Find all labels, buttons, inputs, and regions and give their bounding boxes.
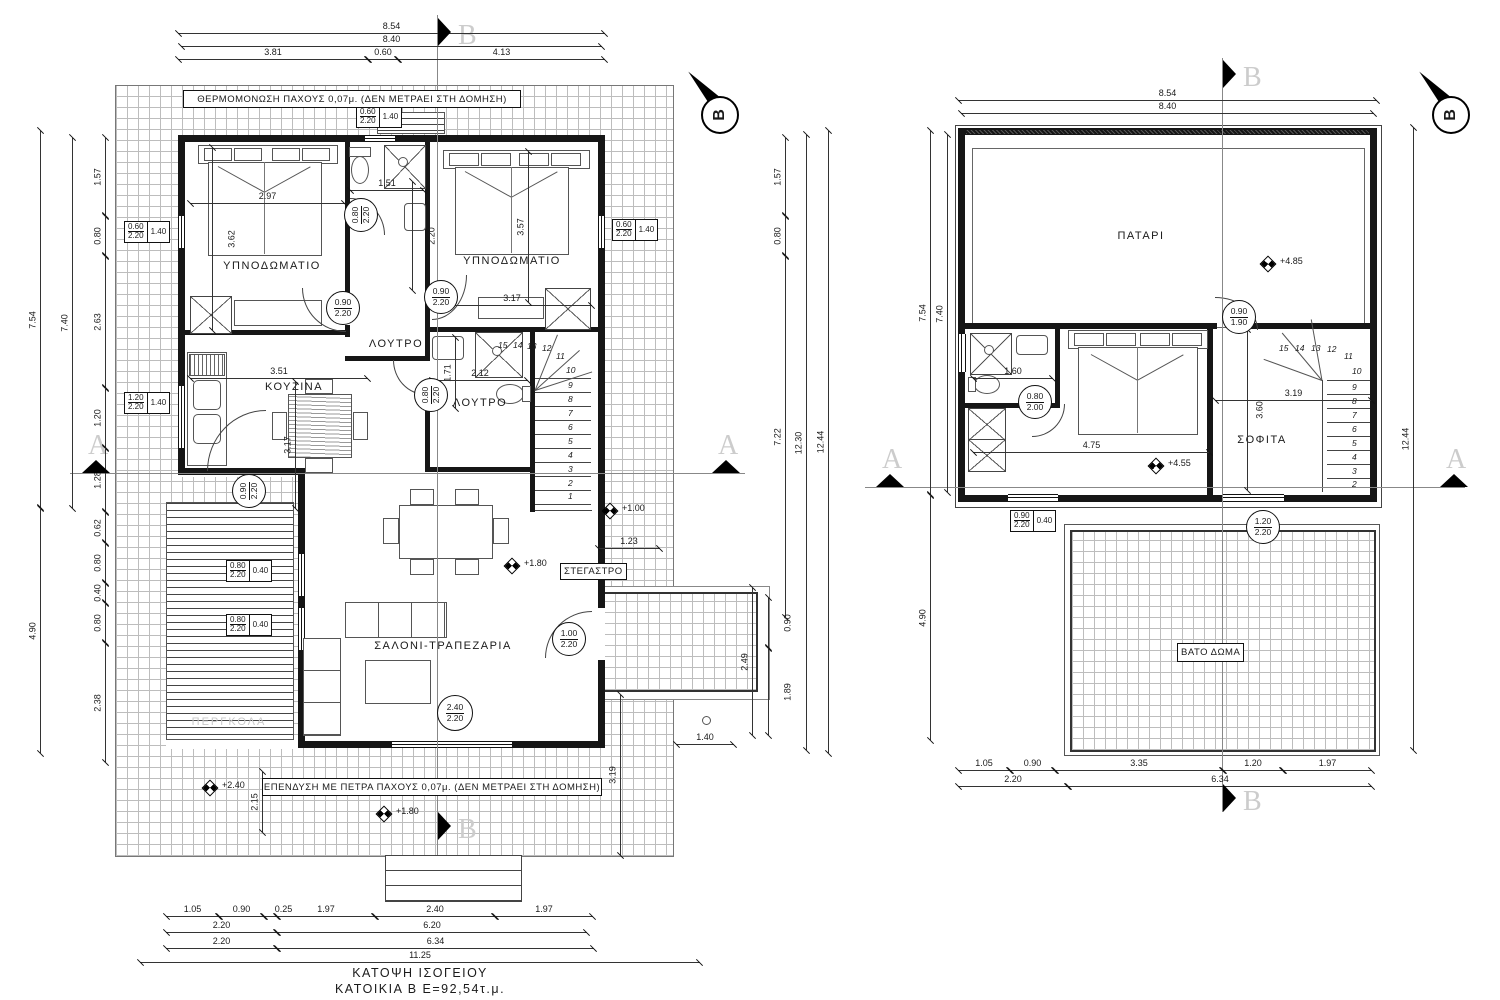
pillow <box>234 148 262 161</box>
dim-line: 0.90 <box>219 916 264 917</box>
room-label-bath2: ΛΟΥΤΡΟ <box>453 397 507 409</box>
stair-number: 11 <box>556 352 565 361</box>
dim-line: 1.60 <box>973 378 1053 379</box>
wall <box>965 323 1217 329</box>
dim-label: 0.80 <box>94 614 103 632</box>
dim-line: 11.25 <box>140 962 700 963</box>
dim-line: 4.75 <box>973 452 1210 453</box>
chair <box>353 412 368 440</box>
section-marker-b <box>1223 60 1236 88</box>
window-height: 2.20 <box>360 117 376 125</box>
dim-label: 3.60 <box>1256 401 1265 419</box>
section-letter-b: B <box>458 816 477 844</box>
dim-label: 2.15 <box>251 793 260 811</box>
window-height: 2.20 <box>128 403 144 411</box>
dim-label: 0.80 <box>94 227 103 245</box>
dim-line: 1.97 <box>277 916 375 917</box>
north-arrow-icon: B <box>701 96 739 134</box>
dim-label: 2.40 <box>426 905 444 914</box>
sink-icon <box>404 203 426 231</box>
dim-label: 1.51 <box>378 179 396 188</box>
room-label-attic: ΣΟΦΙΤΑ <box>1237 434 1286 446</box>
section-letter-a: A <box>882 446 902 474</box>
chair <box>410 489 434 505</box>
dim-line: 4.90 <box>930 495 931 740</box>
dim-label: 8.54 <box>1159 89 1177 98</box>
window-size-marker: 1.202.20 <box>1246 510 1280 544</box>
dim-label: 3.19 <box>609 766 618 784</box>
section-line-a <box>70 473 745 474</box>
dim-label: 2.12 <box>471 369 489 378</box>
stair-number: 5 <box>568 437 573 446</box>
sheet-title-line1: ΚΑΤΟΨΗ ΙΣΟΓΕΙΟΥ <box>352 966 488 980</box>
exterior-steps <box>385 855 522 902</box>
chair <box>305 458 333 473</box>
window-width: 1.20 <box>1254 517 1273 528</box>
section-letter-b: B <box>1243 788 1262 816</box>
dim-label: 2.38 <box>94 694 103 712</box>
dim-label: 0.60 <box>374 48 392 57</box>
dim-label: 4.90 <box>919 609 928 627</box>
window <box>598 216 605 248</box>
dim-line: 0.80 <box>105 603 106 643</box>
north-letter: B <box>711 109 729 121</box>
dim-line: 0.80 <box>105 543 106 583</box>
pillow <box>449 153 479 166</box>
sink-icon <box>1016 335 1048 355</box>
reference-circle <box>702 716 711 725</box>
door-size-marker: 0.902.20 <box>232 474 266 508</box>
dim-line: 3.62 <box>212 148 213 330</box>
wall <box>1243 323 1370 329</box>
dim-label: 6.34 <box>1211 775 1229 784</box>
section-marker-a <box>1440 474 1468 487</box>
insulation-note: ΘΕΡΜΟΜΟΝΩΣΗ ΠΑΧΟΥΣ 0,07μ. (ΔΕΝ ΜΕΤΡΑΕΙ Σ… <box>183 90 521 108</box>
door-height: 2.20 <box>335 309 352 319</box>
dim-line: 2.20 <box>166 932 277 933</box>
door-size-marker: 0.802.20 <box>414 378 448 412</box>
kitchen-sink <box>193 380 221 410</box>
stair-flight <box>1327 380 1370 492</box>
dim-label: 0.90 <box>1024 759 1042 768</box>
window-marker: 0.802.200.40 <box>226 614 272 636</box>
sheet-title-line2: ΚΑΤΟΙΚΙΑ Β Ε=92,54τ.μ. <box>335 982 505 996</box>
level-label: +4.55 <box>1168 458 1191 468</box>
pillow <box>302 148 330 161</box>
dim-line: 3.51 <box>190 378 368 379</box>
roof-terrace-paving <box>1070 530 1376 752</box>
stair-edge <box>535 510 592 511</box>
pillow <box>1172 333 1202 346</box>
dim-line: 1.89 <box>768 648 769 735</box>
door-size-marker: 0.802.20 <box>344 198 378 232</box>
window-sill: 1.40 <box>380 107 402 127</box>
architectural-sheet: ΠΕΡΓΚΟΛΑ <box>0 0 1500 1000</box>
door-size-marker: 0.901.90 <box>1222 300 1256 334</box>
dim-label: 2.20 <box>213 921 231 930</box>
north-letter: B <box>1442 109 1460 121</box>
level-label: +1.80 <box>524 558 547 568</box>
dim-line: 1.57 <box>105 138 106 216</box>
dim-line: 2.40 <box>375 916 495 917</box>
room-label-loft: ΠΑΤΑΡΙ <box>1117 230 1164 242</box>
roof-label: ΒΑΤΟ ΔΩΜΑ <box>1177 643 1244 662</box>
dim-line: 1.05 <box>166 916 219 917</box>
wall <box>1055 329 1060 405</box>
room-label-bedroom1: ΥΠΝΟΔΩΜΑΤΙΟ <box>223 260 321 272</box>
bed <box>1078 347 1198 435</box>
level-label: +4.85 <box>1280 256 1303 266</box>
dim-label: 0.90 <box>233 905 251 914</box>
dim-label: 0.90 <box>784 614 793 632</box>
dim-label: 6.20 <box>423 921 441 930</box>
window-height: 2.20 <box>1255 528 1272 538</box>
window-sill: 0.40 <box>250 615 272 635</box>
stair-number: 10 <box>1352 367 1361 376</box>
stair-number: 2 <box>568 479 573 488</box>
toilet-tank <box>522 386 531 402</box>
bed <box>208 162 322 256</box>
dim-line: 0.80 <box>105 216 106 256</box>
dim-label: 1.23 <box>620 537 638 546</box>
window-width: 2.40 <box>446 703 465 714</box>
stair-number: 12 <box>1327 345 1336 354</box>
dim-label: 7.40 <box>61 314 70 332</box>
dim-line: 0.60 <box>368 59 398 60</box>
window-sill: 0.40 <box>250 561 272 581</box>
chair <box>383 518 399 544</box>
dim-line: 12.30 <box>806 135 807 750</box>
stair-number: 9 <box>568 381 573 390</box>
closet <box>968 439 1006 472</box>
dim-label: 12.44 <box>1402 428 1411 451</box>
insulation-band <box>966 130 1369 134</box>
dim-line: 1.28 <box>105 448 106 512</box>
door-width: 0.80 <box>1026 392 1045 403</box>
section-line-b <box>437 15 438 855</box>
dim-label: 0.80 <box>774 227 783 245</box>
dim-label: 2.63 <box>94 313 103 331</box>
door-height: 2.00 <box>1027 403 1044 413</box>
dim-label: 3.62 <box>228 230 237 248</box>
window-height: 2.20 <box>1014 521 1030 529</box>
room-label-kitchen: ΚΟΥΖΙΝΑ <box>265 381 323 393</box>
stair-edge <box>1322 380 1323 492</box>
window-marker: 0.902.200.40 <box>1010 510 1056 532</box>
dim-label: 1.20 <box>1244 759 1262 768</box>
window-marker: 0.602.201.40 <box>124 221 170 243</box>
dim-label: 1.20 <box>94 409 103 427</box>
section-marker-b <box>438 812 451 840</box>
dim-line: 2.20 <box>958 786 1068 787</box>
dim-line: 3.19 <box>1215 400 1372 401</box>
dim-line: 7.54 <box>930 131 931 495</box>
dim-label: 1.57 <box>774 168 783 186</box>
dim-label: 3.17 <box>284 436 293 454</box>
dim-label: 1.05 <box>975 759 993 768</box>
section-marker-b <box>1223 784 1236 812</box>
dim-line: 3.81 <box>178 59 368 60</box>
dim-line: 6.34 <box>277 948 594 949</box>
dim-label: 1.97 <box>1319 759 1337 768</box>
door-size-marker: 0.902.20 <box>424 280 458 314</box>
dim-label: 4.75 <box>1083 441 1101 450</box>
dim-label: 8.40 <box>383 35 401 44</box>
door-width: 0.90 <box>432 287 451 298</box>
window <box>178 386 185 448</box>
dim-line: 0.40 <box>105 583 106 603</box>
section-marker-b <box>438 18 451 46</box>
dim-line: 0.62 <box>105 512 106 543</box>
door-width: 1.00 <box>560 629 579 640</box>
dim-label: 1.28 <box>94 471 103 489</box>
door-width: 0.80 <box>421 386 432 405</box>
window <box>298 554 305 596</box>
pillow <box>204 148 232 161</box>
dim-line: 2.38 <box>105 643 106 762</box>
wall <box>1207 329 1213 495</box>
porch-paving <box>602 592 758 692</box>
window-sill: 0.40 <box>1034 511 1056 531</box>
dim-label: 2.97 <box>259 192 277 201</box>
dim-line: 7.54 <box>40 131 41 508</box>
dim-label: 7.54 <box>29 311 38 329</box>
door-size-marker: 1.002.20 <box>552 622 586 656</box>
dim-label: 11.25 <box>409 951 431 960</box>
section-line-a <box>865 487 1465 488</box>
bed-center-line <box>264 162 265 254</box>
dim-label: 4.13 <box>493 48 511 57</box>
door-width: 0.90 <box>334 298 353 309</box>
stair-number: 5 <box>1352 439 1357 448</box>
dim-label: 1.97 <box>317 905 335 914</box>
dim-line: 3.60 <box>1247 330 1248 490</box>
dim-label: 3.19 <box>1285 389 1303 398</box>
dim-line: 1.71 <box>455 338 456 408</box>
dim-line: 1.20 <box>105 388 106 448</box>
door-height: 2.20 <box>433 298 450 308</box>
window-height: 2.20 <box>230 571 246 579</box>
pillow <box>1140 333 1170 346</box>
stair-number: 8 <box>568 395 573 404</box>
dim-line: 6.34 <box>1068 786 1372 787</box>
door-height: 2.20 <box>250 483 260 500</box>
pillow <box>1074 333 1104 346</box>
bed-center-line <box>1137 347 1138 433</box>
dim-line: 1.57 <box>785 138 786 216</box>
dim-label: 1.89 <box>784 683 793 701</box>
stair-number: 13 <box>1311 344 1320 353</box>
wall <box>425 467 535 472</box>
stair-number: 6 <box>568 423 573 432</box>
sofa <box>303 638 341 736</box>
level-label: +1.80 <box>396 806 419 816</box>
chair <box>455 559 479 575</box>
shower-drain <box>984 345 994 355</box>
level-label: +2.40 <box>222 780 245 790</box>
pillow <box>519 153 549 166</box>
window-height: 2.20 <box>128 232 144 240</box>
dim-label: 6.34 <box>427 937 445 946</box>
dim-line: 3.57 <box>528 152 529 302</box>
door-height: 2.20 <box>432 387 442 404</box>
stair-number: 4 <box>1352 453 1357 462</box>
stair-number: 11 <box>1344 352 1353 361</box>
dim-label: 1.40 <box>696 733 714 742</box>
north-arrow-icon: B <box>1432 96 1470 134</box>
window-height: 2.20 <box>616 230 632 238</box>
dim-line: 0.80 <box>785 216 786 256</box>
dim-line: 4.13 <box>398 59 605 60</box>
window-sill: 1.40 <box>636 220 658 240</box>
section-letter-a: A <box>1446 446 1466 474</box>
stair-flight <box>535 378 591 510</box>
dim-line: 2.97 <box>190 203 345 204</box>
stair-number: 14 <box>513 341 522 350</box>
dim-line: 7.40 <box>947 135 948 492</box>
window <box>392 741 512 748</box>
dim-label: 0.62 <box>94 519 103 537</box>
dim-label: 3.81 <box>264 48 282 57</box>
door-width: 0.80 <box>351 206 362 225</box>
section-marker-a <box>876 474 904 487</box>
stair-number: 15 <box>1279 344 1288 353</box>
dim-line: 2.63 <box>105 256 106 388</box>
dim-line: 6.20 <box>277 932 587 933</box>
stair-number: 3 <box>1352 467 1357 476</box>
closet <box>545 288 591 330</box>
dim-label: 1.97 <box>535 905 553 914</box>
shower-drain <box>398 157 408 167</box>
dim-line: 2.20 <box>412 182 413 290</box>
dim-label: 3.57 <box>517 218 526 236</box>
dim-label: 3.51 <box>270 367 288 376</box>
dim-label: 8.40 <box>1159 102 1177 111</box>
section-marker-a <box>712 460 740 473</box>
dim-label: 12.30 <box>795 431 804 454</box>
dim-line: 0.25 <box>264 916 277 917</box>
window <box>1008 494 1058 502</box>
dim-line: 1.97 <box>495 916 593 917</box>
wall <box>425 332 430 360</box>
pergola-label: ΠΕΡΓΚΟΛΑ <box>192 716 267 728</box>
window-size-marker: 2.402.20 <box>437 695 473 731</box>
stair-number: 9 <box>1352 383 1357 392</box>
room-label-bath1: ΛΟΥΤΡΟ <box>369 338 423 350</box>
dim-label: 4.90 <box>29 622 38 640</box>
dim-line: 1.97 <box>1283 770 1372 771</box>
dim-line: 7.22 <box>785 256 786 617</box>
dim-label: 1.05 <box>184 905 202 914</box>
dim-line: 7.40 <box>72 138 73 508</box>
dim-line: 8.40 <box>961 113 1374 114</box>
sofa <box>345 602 447 638</box>
stair-number: 7 <box>568 409 573 418</box>
window <box>958 334 966 372</box>
coffee-table <box>365 660 431 704</box>
dim-line: 12.44 <box>828 131 829 753</box>
dim-line: 3.17 <box>432 305 592 306</box>
stair-number: 4 <box>568 451 573 460</box>
kitchen-table <box>288 394 352 458</box>
dim-line: 1.23 <box>598 548 660 549</box>
window <box>365 135 395 142</box>
dim-line: 3.19 <box>620 695 621 855</box>
entry-opening <box>598 608 605 660</box>
dim-line: 2.49 <box>752 588 753 735</box>
door-height: 1.90 <box>1231 318 1248 328</box>
dim-label: 3.17 <box>503 294 521 303</box>
pillow <box>551 153 581 166</box>
dim-label: 0.80 <box>94 554 103 572</box>
room-label-bedroom2: ΥΠΝΟΔΩΜΑΤΙΟ <box>463 255 561 267</box>
dim-label: 7.22 <box>774 428 783 446</box>
window <box>178 216 185 248</box>
window-sill: 1.40 <box>148 222 170 242</box>
chair <box>455 489 479 505</box>
section-marker-a <box>82 460 110 473</box>
dim-line: 0.90 <box>1010 770 1055 771</box>
toilet-icon <box>351 156 369 184</box>
stair-number: 7 <box>1352 411 1357 420</box>
dim-line: 1.20 <box>1223 770 1283 771</box>
stair-number: 1 <box>568 492 573 501</box>
window-marker: 0.602.201.40 <box>612 219 658 241</box>
dim-label: 2.20 <box>213 937 231 946</box>
dim-label: 3.35 <box>1130 759 1148 768</box>
dim-label: 8.54 <box>383 22 401 31</box>
dim-line: 2.12 <box>432 380 528 381</box>
section-letter-a: A <box>718 432 738 460</box>
dim-label: 0.25 <box>275 905 293 914</box>
dim-label: 12.44 <box>817 431 826 454</box>
dim-line: 3.17 <box>295 382 296 508</box>
door-size-marker: 0.802.00 <box>1018 385 1052 419</box>
canopy-label: ΣΤΕΓΑΣΤΡΟ <box>560 563 627 580</box>
dim-line: 4.90 <box>40 508 41 753</box>
chair <box>410 559 434 575</box>
loft-inner-line <box>972 148 1365 328</box>
kitchen-hob <box>189 354 225 376</box>
dim-line: 1.40 <box>676 744 734 745</box>
dim-line: 1.05 <box>958 770 1010 771</box>
pillow <box>272 148 300 161</box>
closet <box>968 408 1006 441</box>
door-size-marker: 0.902.20 <box>326 291 360 325</box>
window-marker: 0.802.200.40 <box>226 560 272 582</box>
stair-number: 8 <box>1352 397 1357 406</box>
bed <box>455 167 569 255</box>
door-height: 2.20 <box>561 640 578 650</box>
door-height: 2.20 <box>362 207 372 224</box>
room-label-living: ΣΑΛΟΝΙ-ΤΡΑΠΕΖΑΡΙΑ <box>374 640 512 652</box>
dim-label: 1.57 <box>94 168 103 186</box>
window-height: 2.20 <box>447 714 464 724</box>
dim-line: 0.90 <box>768 598 769 648</box>
bed-center-line <box>511 167 512 253</box>
pillow <box>1106 333 1136 346</box>
stair-number: 15 <box>498 341 507 350</box>
dim-label: 2.49 <box>741 653 750 671</box>
pillow <box>481 153 511 166</box>
dim-label: 1.60 <box>1004 367 1022 376</box>
stair-number: 10 <box>566 366 575 375</box>
section-letter-b: B <box>1243 64 1262 92</box>
dim-label: 7.54 <box>919 304 928 322</box>
window <box>1222 494 1284 502</box>
dim-line: 3.35 <box>1055 770 1223 771</box>
window-marker: 1.202.201.40 <box>124 392 170 414</box>
